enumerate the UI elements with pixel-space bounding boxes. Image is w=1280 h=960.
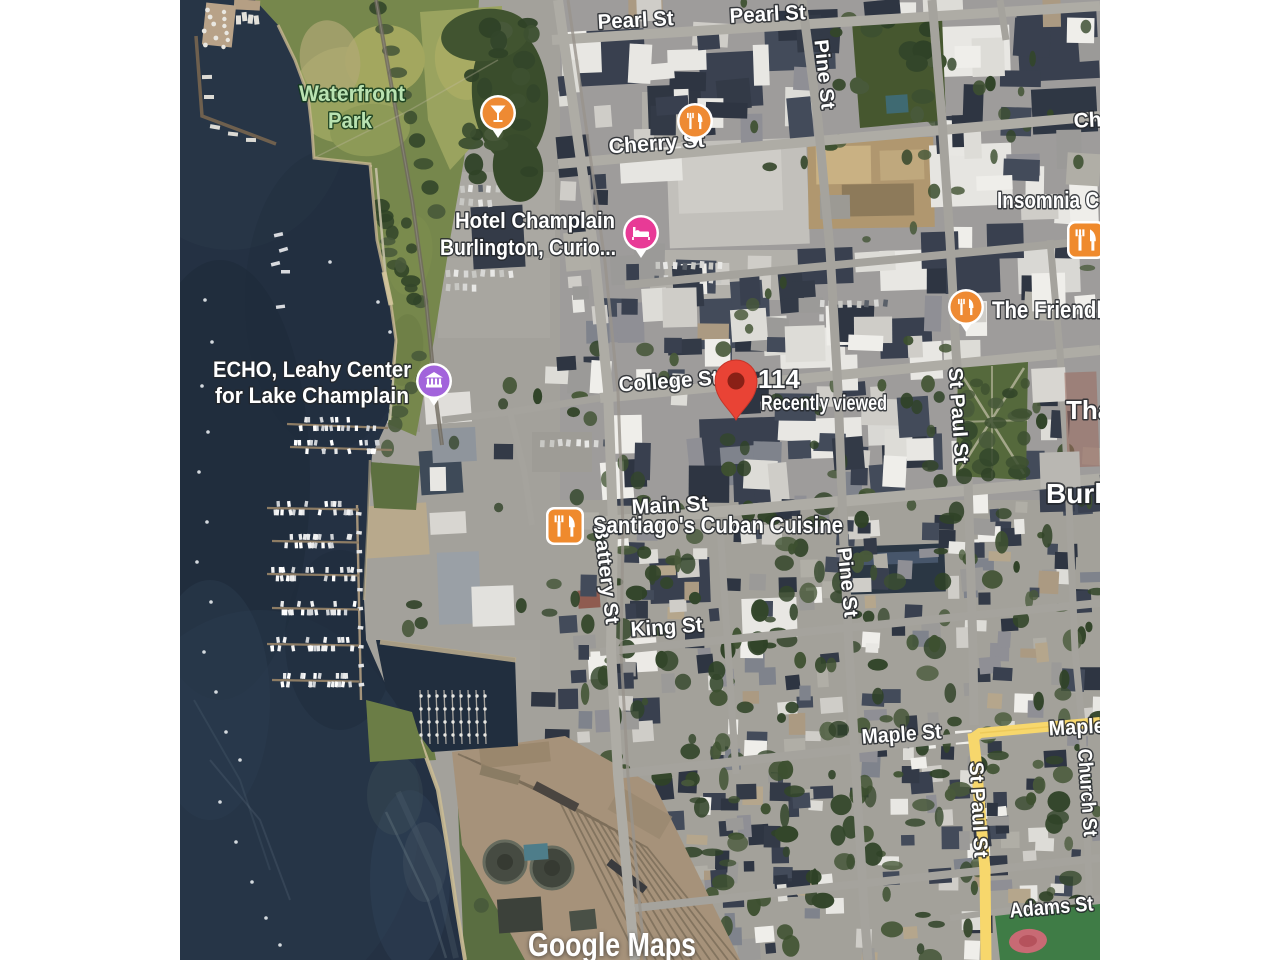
svg-text:Burlington, Curio...: Burlington, Curio... <box>440 235 616 260</box>
svg-text:Tha: Tha <box>1066 395 1100 425</box>
svg-text:ECHO, Leahy Center: ECHO, Leahy Center <box>213 357 411 382</box>
svg-text:Park: Park <box>328 108 373 133</box>
svg-text:Recently viewed: Recently viewed <box>761 392 887 415</box>
svg-text:for Lake Champlain: for Lake Champlain <box>215 383 409 408</box>
svg-text:The Friendl: The Friendl <box>992 297 1100 324</box>
svg-text:Pearl St: Pearl St <box>729 1 806 28</box>
svg-text:Waterfront: Waterfront <box>299 81 406 106</box>
svg-text:Hotel Champlain: Hotel Champlain <box>455 208 615 233</box>
svg-text:Burli: Burli <box>1046 478 1100 509</box>
svg-text:Ch: Ch <box>1073 108 1100 132</box>
svg-text:Insomnia C: Insomnia C <box>997 187 1099 213</box>
svg-text:Santiago's Cuban Cuisine: Santiago's Cuban Cuisine <box>593 512 843 538</box>
svg-text:Google Maps: Google Maps <box>528 926 696 960</box>
svg-text:114: 114 <box>758 364 800 394</box>
svg-text:Pearl St: Pearl St <box>597 7 674 34</box>
svg-text:Maple: Maple <box>1048 715 1100 741</box>
